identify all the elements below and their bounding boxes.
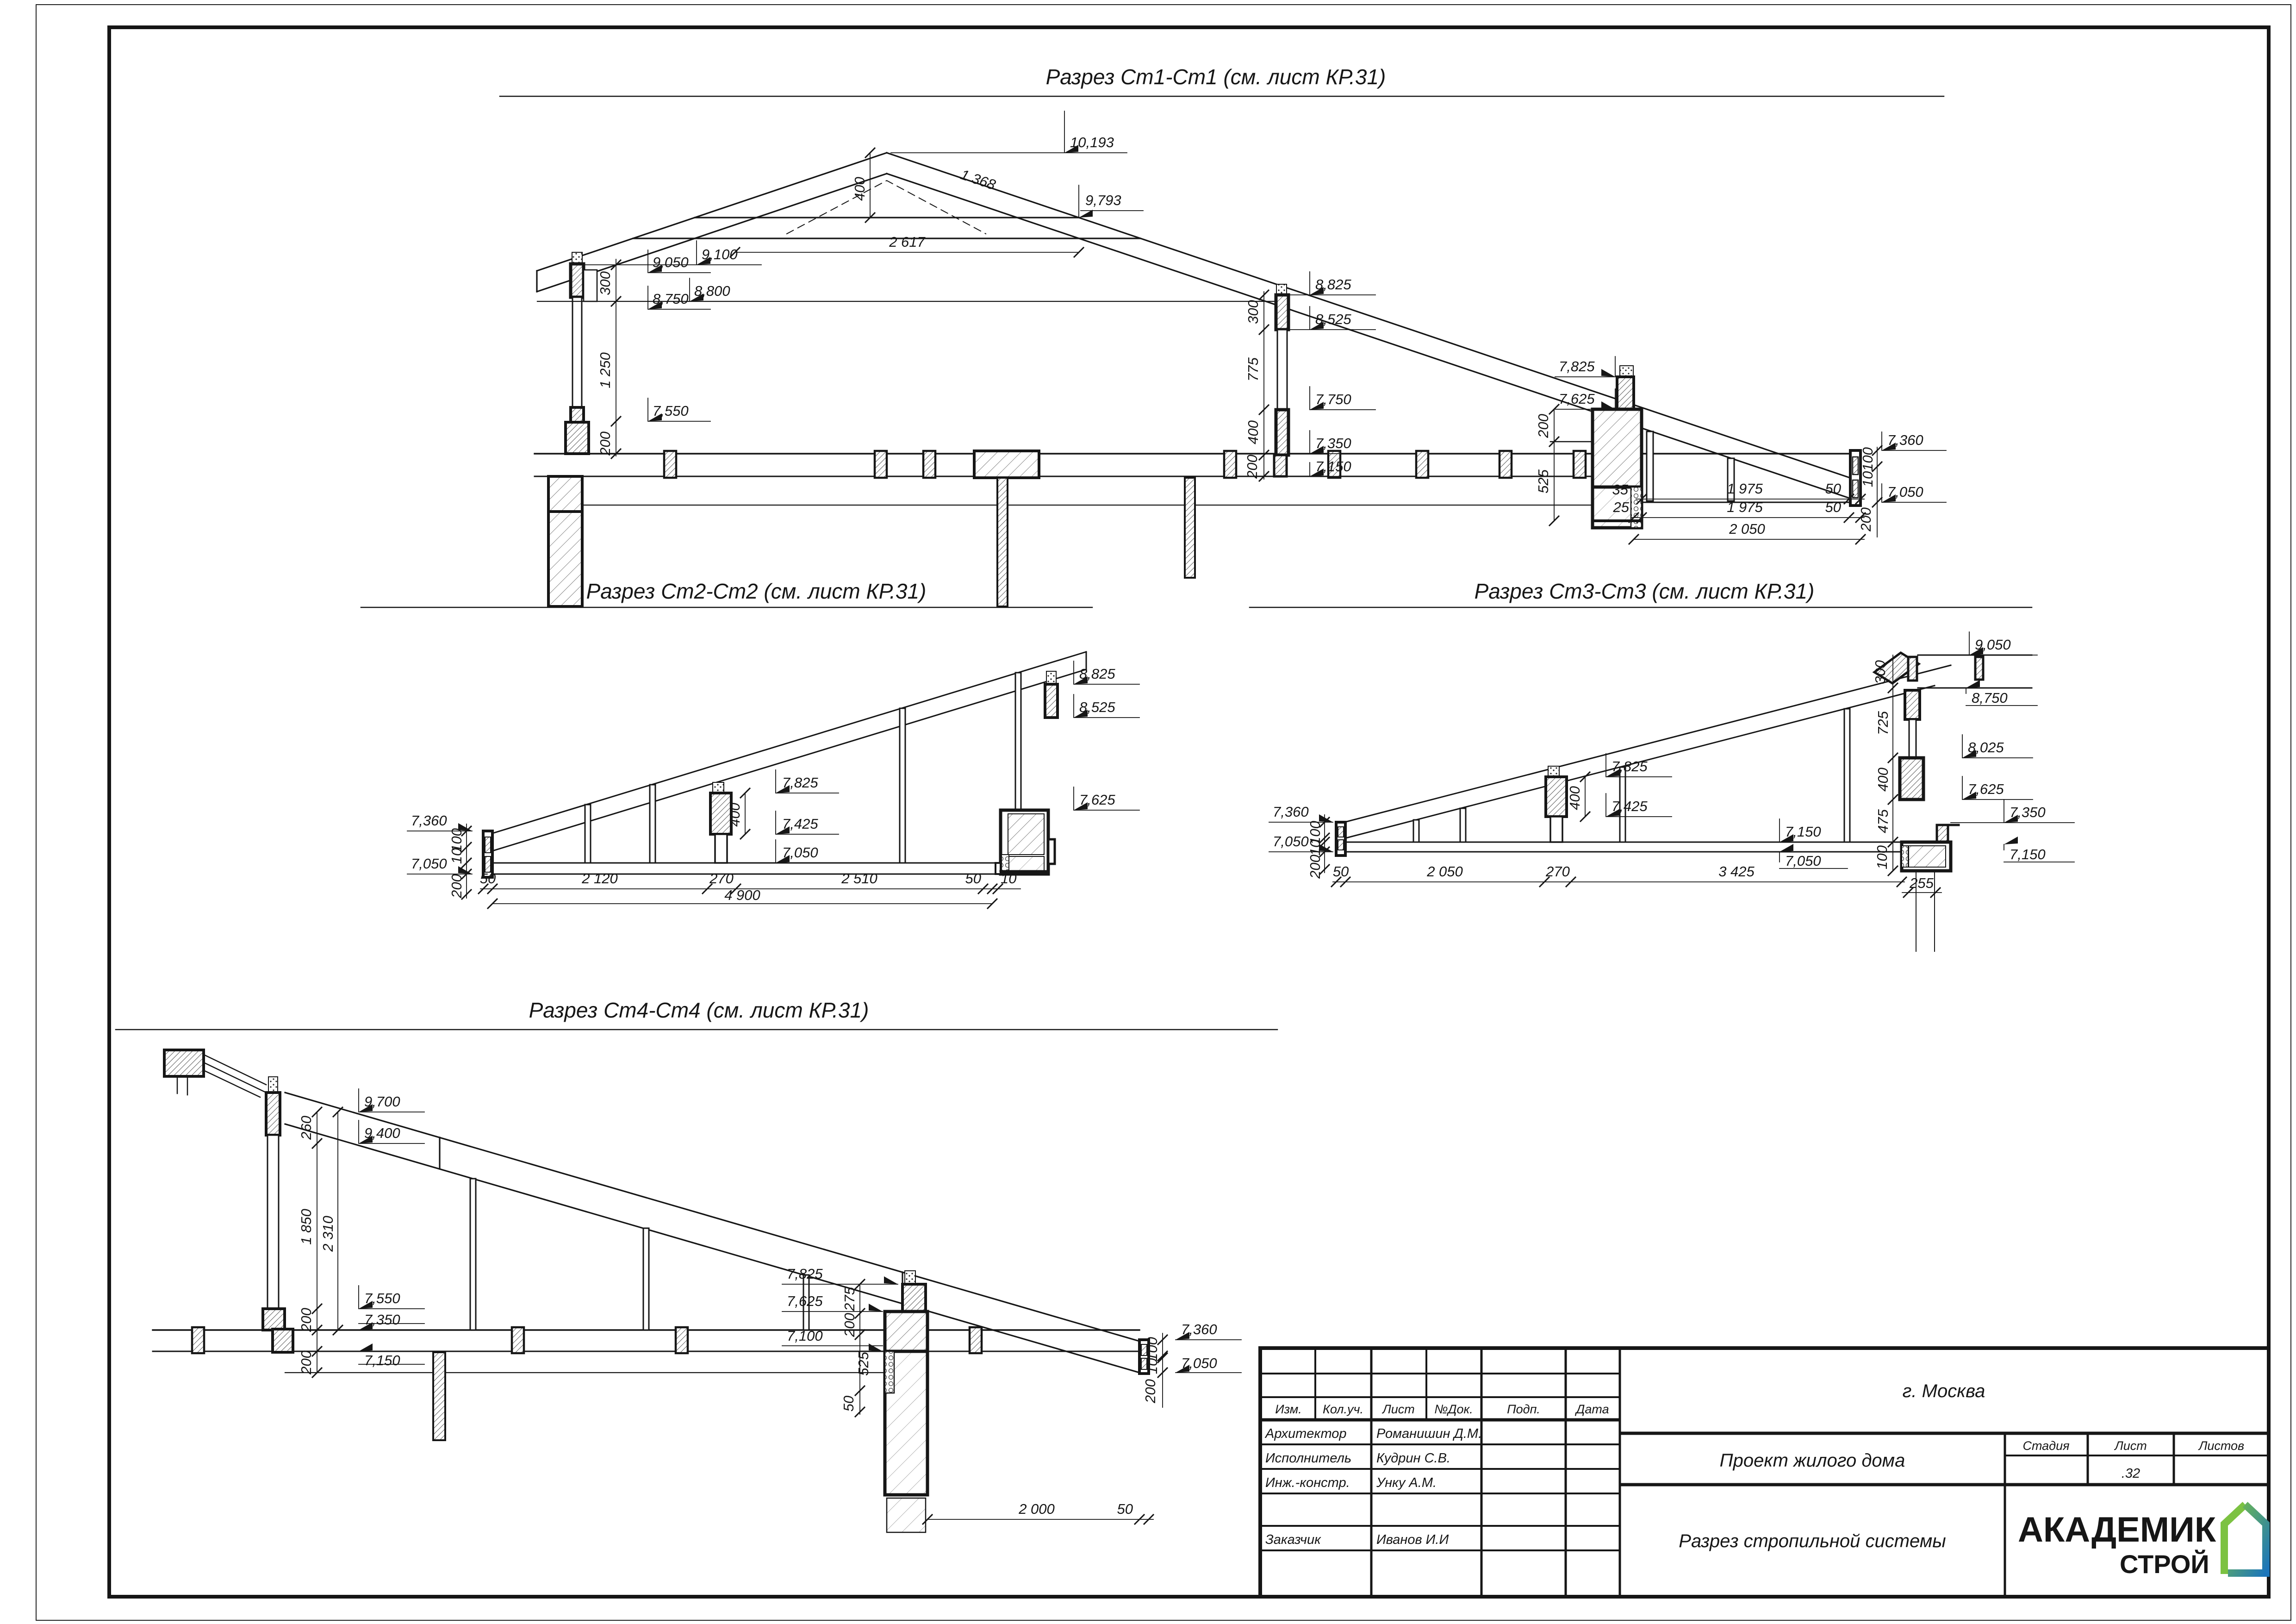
svg-text:2 120: 2 120 (581, 870, 618, 887)
st3-middle-post (1546, 766, 1567, 842)
st2-flags (458, 676, 1088, 874)
svg-text:200: 200 (1858, 507, 1874, 532)
svg-text:725: 725 (1875, 711, 1891, 735)
svg-text:775: 775 (1245, 357, 1261, 381)
svg-text:7,360: 7,360 (1181, 1321, 1217, 1337)
svg-text:7,825: 7,825 (782, 775, 818, 791)
svg-text:4 900: 4 900 (724, 887, 760, 903)
svg-text:7,360: 7,360 (411, 812, 447, 829)
staff-name: Иванов И.И (1376, 1532, 1449, 1547)
st1-floor-joists (664, 451, 1586, 478)
st4-top-left-assembly (164, 1050, 266, 1097)
staff-role: Инж.-констр. (1265, 1475, 1350, 1490)
project-title: Проект жилого дома (1720, 1450, 1905, 1471)
svg-text:475: 475 (1875, 809, 1891, 833)
svg-text:2 510: 2 510 (841, 870, 877, 887)
svg-text:7,425: 7,425 (782, 816, 818, 832)
svg-text:7,750: 7,750 (1315, 391, 1351, 407)
svg-text:200: 200 (448, 874, 465, 899)
svg-text:200: 200 (841, 1313, 858, 1337)
section-st4: Разрез Ст4-Ст4 (см. лист КР.31) (116, 998, 1277, 1532)
st1-right-wall (1550, 366, 1860, 528)
svg-text:8,825: 8,825 (1079, 666, 1115, 682)
svg-text:7,350: 7,350 (1315, 435, 1351, 451)
svg-text:50: 50 (1825, 499, 1841, 515)
svg-text:100: 100 (1874, 845, 1890, 869)
st3-left-fascia (1336, 822, 1345, 856)
st4-dim-texts: 9,700 260 9,400 1 850 2 310 7,550 200 7,… (298, 1093, 1217, 1517)
section-st2-title: Разрез Ст2-Ст2 (см. лист КР.31) (586, 579, 927, 603)
svg-text:200: 200 (298, 1308, 314, 1332)
svg-text:10: 10 (448, 848, 465, 864)
svg-text:9,400: 9,400 (364, 1125, 400, 1141)
st1-hanging-post-1 (997, 478, 1008, 606)
logo-text-stroy: СТРОЙ (2120, 1549, 2209, 1579)
st4-right-wall (885, 1271, 927, 1532)
svg-text:7,360: 7,360 (1887, 432, 1923, 448)
st3-right-column (1900, 690, 1959, 951)
svg-text:7,550: 7,550 (653, 403, 689, 419)
svg-text:1 975: 1 975 (1727, 481, 1763, 497)
svg-text:275: 275 (841, 1287, 858, 1311)
section-st4-title: Разрез Ст4-Ст4 (см. лист КР.31) (529, 998, 869, 1022)
st2-right-member (1045, 671, 1058, 718)
svg-text:3 425: 3 425 (1718, 863, 1755, 880)
svg-text:2 050: 2 050 (1426, 863, 1463, 880)
svg-text:400: 400 (852, 177, 868, 201)
svg-text:10,193: 10,193 (1070, 134, 1114, 150)
svg-text:8,750: 8,750 (653, 291, 689, 307)
col-podp: Подп. (1507, 1402, 1540, 1416)
section-st1: Разрез Ст1-Ст1 (см. лист КР.31) (500, 65, 1946, 606)
svg-text:50: 50 (1117, 1501, 1133, 1517)
st4-dim-lines (317, 1089, 1241, 1519)
svg-text:300: 300 (1872, 660, 1888, 684)
svg-text:100: 100 (1860, 447, 1876, 471)
svg-text:7,425: 7,425 (1612, 798, 1648, 814)
svg-text:260: 260 (298, 1116, 314, 1140)
svg-text:1 250: 1 250 (597, 352, 613, 388)
svg-text:2 617: 2 617 (889, 234, 926, 250)
st2-roof-lines (492, 652, 1086, 874)
st4-struts (470, 1179, 809, 1330)
drawing-sheet: Разрез Ст1-Ст1 (см. лист КР.31) (0, 0, 2296, 1624)
st3-struts (1413, 709, 1850, 842)
svg-text:400: 400 (1567, 786, 1583, 810)
svg-text:10: 10 (1001, 870, 1016, 887)
svg-text:400: 400 (1245, 420, 1261, 444)
col-ndok: №Док. (1434, 1402, 1473, 1416)
svg-text:50: 50 (1333, 863, 1349, 880)
svg-text:7,050: 7,050 (1181, 1355, 1217, 1371)
svg-text:200: 200 (1307, 855, 1323, 879)
section-st3: Разрез Ст3-Ст3 (см. лист КР.31) (1250, 579, 2074, 951)
svg-text:1 368: 1 368 (958, 166, 998, 193)
logo-text-academic: АКАДЕМИК (2018, 1510, 2216, 1549)
svg-text:1 850: 1 850 (298, 1209, 314, 1245)
svg-text:7,150: 7,150 (2010, 846, 2046, 862)
st4-left-post (263, 1077, 293, 1352)
staff-role: Исполнитель (1265, 1451, 1351, 1466)
st4-flags (359, 1104, 1189, 1373)
title-block: Изм. Кол.уч. Лист №Док. Подп. Дата Архит… (1260, 1348, 2269, 1597)
staff-role: Заказчик (1265, 1532, 1321, 1547)
col-izm: Изм. (1275, 1402, 1302, 1416)
svg-text:400: 400 (1875, 768, 1891, 792)
svg-text:7,050: 7,050 (1887, 484, 1923, 500)
sheet-number: .32 (2122, 1466, 2140, 1481)
svg-text:7,625: 7,625 (787, 1293, 823, 1309)
svg-text:7,150: 7,150 (1315, 458, 1351, 475)
svg-text:35: 35 (1612, 481, 1629, 498)
svg-text:270: 270 (709, 870, 734, 887)
st1-dim-ticks (611, 148, 1882, 544)
st3-ridge-assembly (1874, 653, 1983, 683)
svg-text:1 975: 1 975 (1727, 499, 1763, 515)
st1-flags (648, 145, 1896, 502)
svg-text:7,050: 7,050 (1273, 833, 1309, 849)
col-data: Дата (1574, 1402, 1609, 1416)
svg-text:7,625: 7,625 (1968, 781, 2004, 797)
svg-text:300: 300 (597, 271, 613, 295)
st1-dashed-collar (787, 181, 986, 234)
svg-text:200: 200 (298, 1350, 314, 1375)
staff-name: Унку А.М. (1376, 1475, 1437, 1490)
svg-text:50: 50 (1825, 481, 1841, 497)
svg-text:7,360: 7,360 (1273, 804, 1309, 820)
section-st1-title: Разрез Ст1-Ст1 (см. лист КР.31) (1046, 65, 1386, 89)
st1-middle-post (1274, 284, 1288, 476)
svg-text:255: 255 (1909, 875, 1934, 891)
svg-text:9,700: 9,700 (364, 1093, 400, 1110)
svg-text:10: 10 (1144, 1358, 1160, 1374)
col-list: Лист (1381, 1402, 1415, 1416)
svg-text:2 000: 2 000 (1018, 1501, 1055, 1517)
svg-text:270: 270 (1545, 863, 1570, 880)
staff-role: Архитектор (1264, 1426, 1347, 1441)
svg-text:8,750: 8,750 (1972, 690, 2008, 706)
svg-text:2 310: 2 310 (320, 1216, 336, 1252)
st4-hanging-post (433, 1352, 445, 1440)
svg-text:7,550: 7,550 (364, 1290, 400, 1306)
svg-text:8,025: 8,025 (1968, 739, 2004, 756)
st1-hanging-post-2 (1185, 478, 1195, 578)
col-koluch: Кол.уч. (1323, 1402, 1363, 1416)
sheet-label: Лист (2114, 1439, 2147, 1453)
svg-text:8,800: 8,800 (694, 283, 730, 299)
svg-text:9,050: 9,050 (1975, 637, 2011, 653)
svg-text:25: 25 (1613, 499, 1630, 515)
svg-text:200: 200 (1142, 1379, 1158, 1404)
svg-text:7,625: 7,625 (1079, 792, 1115, 808)
svg-text:525: 525 (1535, 469, 1551, 493)
svg-text:50: 50 (480, 870, 496, 887)
svg-text:8,825: 8,825 (1315, 276, 1351, 293)
staff-name: Романишин Д.М. (1376, 1426, 1482, 1441)
svg-text:7,350: 7,350 (2010, 804, 2046, 820)
svg-text:7,825: 7,825 (1612, 758, 1648, 775)
drawing-title: Разрез стропильной системы (1679, 1531, 1946, 1551)
staff-name: Кудрин С.В. (1376, 1451, 1450, 1466)
svg-text:8,525: 8,525 (1315, 311, 1351, 327)
svg-text:9,793: 9,793 (1085, 192, 1121, 208)
svg-text:2 050: 2 050 (1729, 521, 1765, 537)
svg-text:7,150: 7,150 (364, 1352, 400, 1368)
svg-text:7,825: 7,825 (1559, 358, 1595, 375)
svg-text:100: 100 (1144, 1337, 1160, 1361)
st3-dim-lines (1269, 632, 2074, 893)
st1-pier-cap (974, 451, 1039, 478)
svg-text:7,625: 7,625 (1559, 391, 1595, 407)
svg-text:9,100: 9,100 (702, 246, 738, 262)
svg-text:10: 10 (1860, 471, 1876, 487)
svg-text:7,350: 7,350 (364, 1312, 400, 1328)
svg-text:525: 525 (855, 1351, 871, 1375)
svg-text:50: 50 (965, 870, 981, 887)
svg-text:10: 10 (1307, 840, 1323, 856)
svg-text:9,050: 9,050 (653, 254, 689, 270)
svg-text:200: 200 (1244, 455, 1260, 479)
st1-roof-lines (537, 153, 1851, 498)
svg-text:200: 200 (1535, 414, 1551, 438)
st1-left-post (566, 252, 597, 454)
svg-text:300: 300 (1245, 300, 1261, 324)
svg-text:7,100: 7,100 (787, 1328, 823, 1344)
svg-text:7,150: 7,150 (1785, 824, 1821, 840)
stage-label: Стадия (2022, 1439, 2069, 1453)
svg-text:7,050: 7,050 (411, 856, 447, 872)
svg-text:200: 200 (597, 431, 613, 456)
st2-right-wall (996, 810, 1055, 874)
city-label: г. Москва (1903, 1381, 1985, 1401)
sheets-label: Листов (2198, 1439, 2244, 1453)
svg-text:7,050: 7,050 (1785, 853, 1821, 869)
drawing-canvas: Разрез Ст1-Ст1 (см. лист КР.31) (0, 0, 2296, 1624)
section-st2: Разрез Ст2-Ст2 (см. лист КР.31) (361, 579, 1139, 908)
svg-text:7,825: 7,825 (787, 1266, 823, 1282)
svg-text:8,525: 8,525 (1079, 699, 1115, 715)
st3-roof-lines (1344, 655, 2032, 852)
svg-text:400: 400 (727, 803, 743, 827)
svg-text:50: 50 (840, 1396, 857, 1412)
section-st3-title: Разрез Ст3-Ст3 (см. лист КР.31) (1475, 579, 1815, 603)
svg-text:7,050: 7,050 (782, 844, 818, 861)
st1-left-pier (548, 476, 582, 606)
